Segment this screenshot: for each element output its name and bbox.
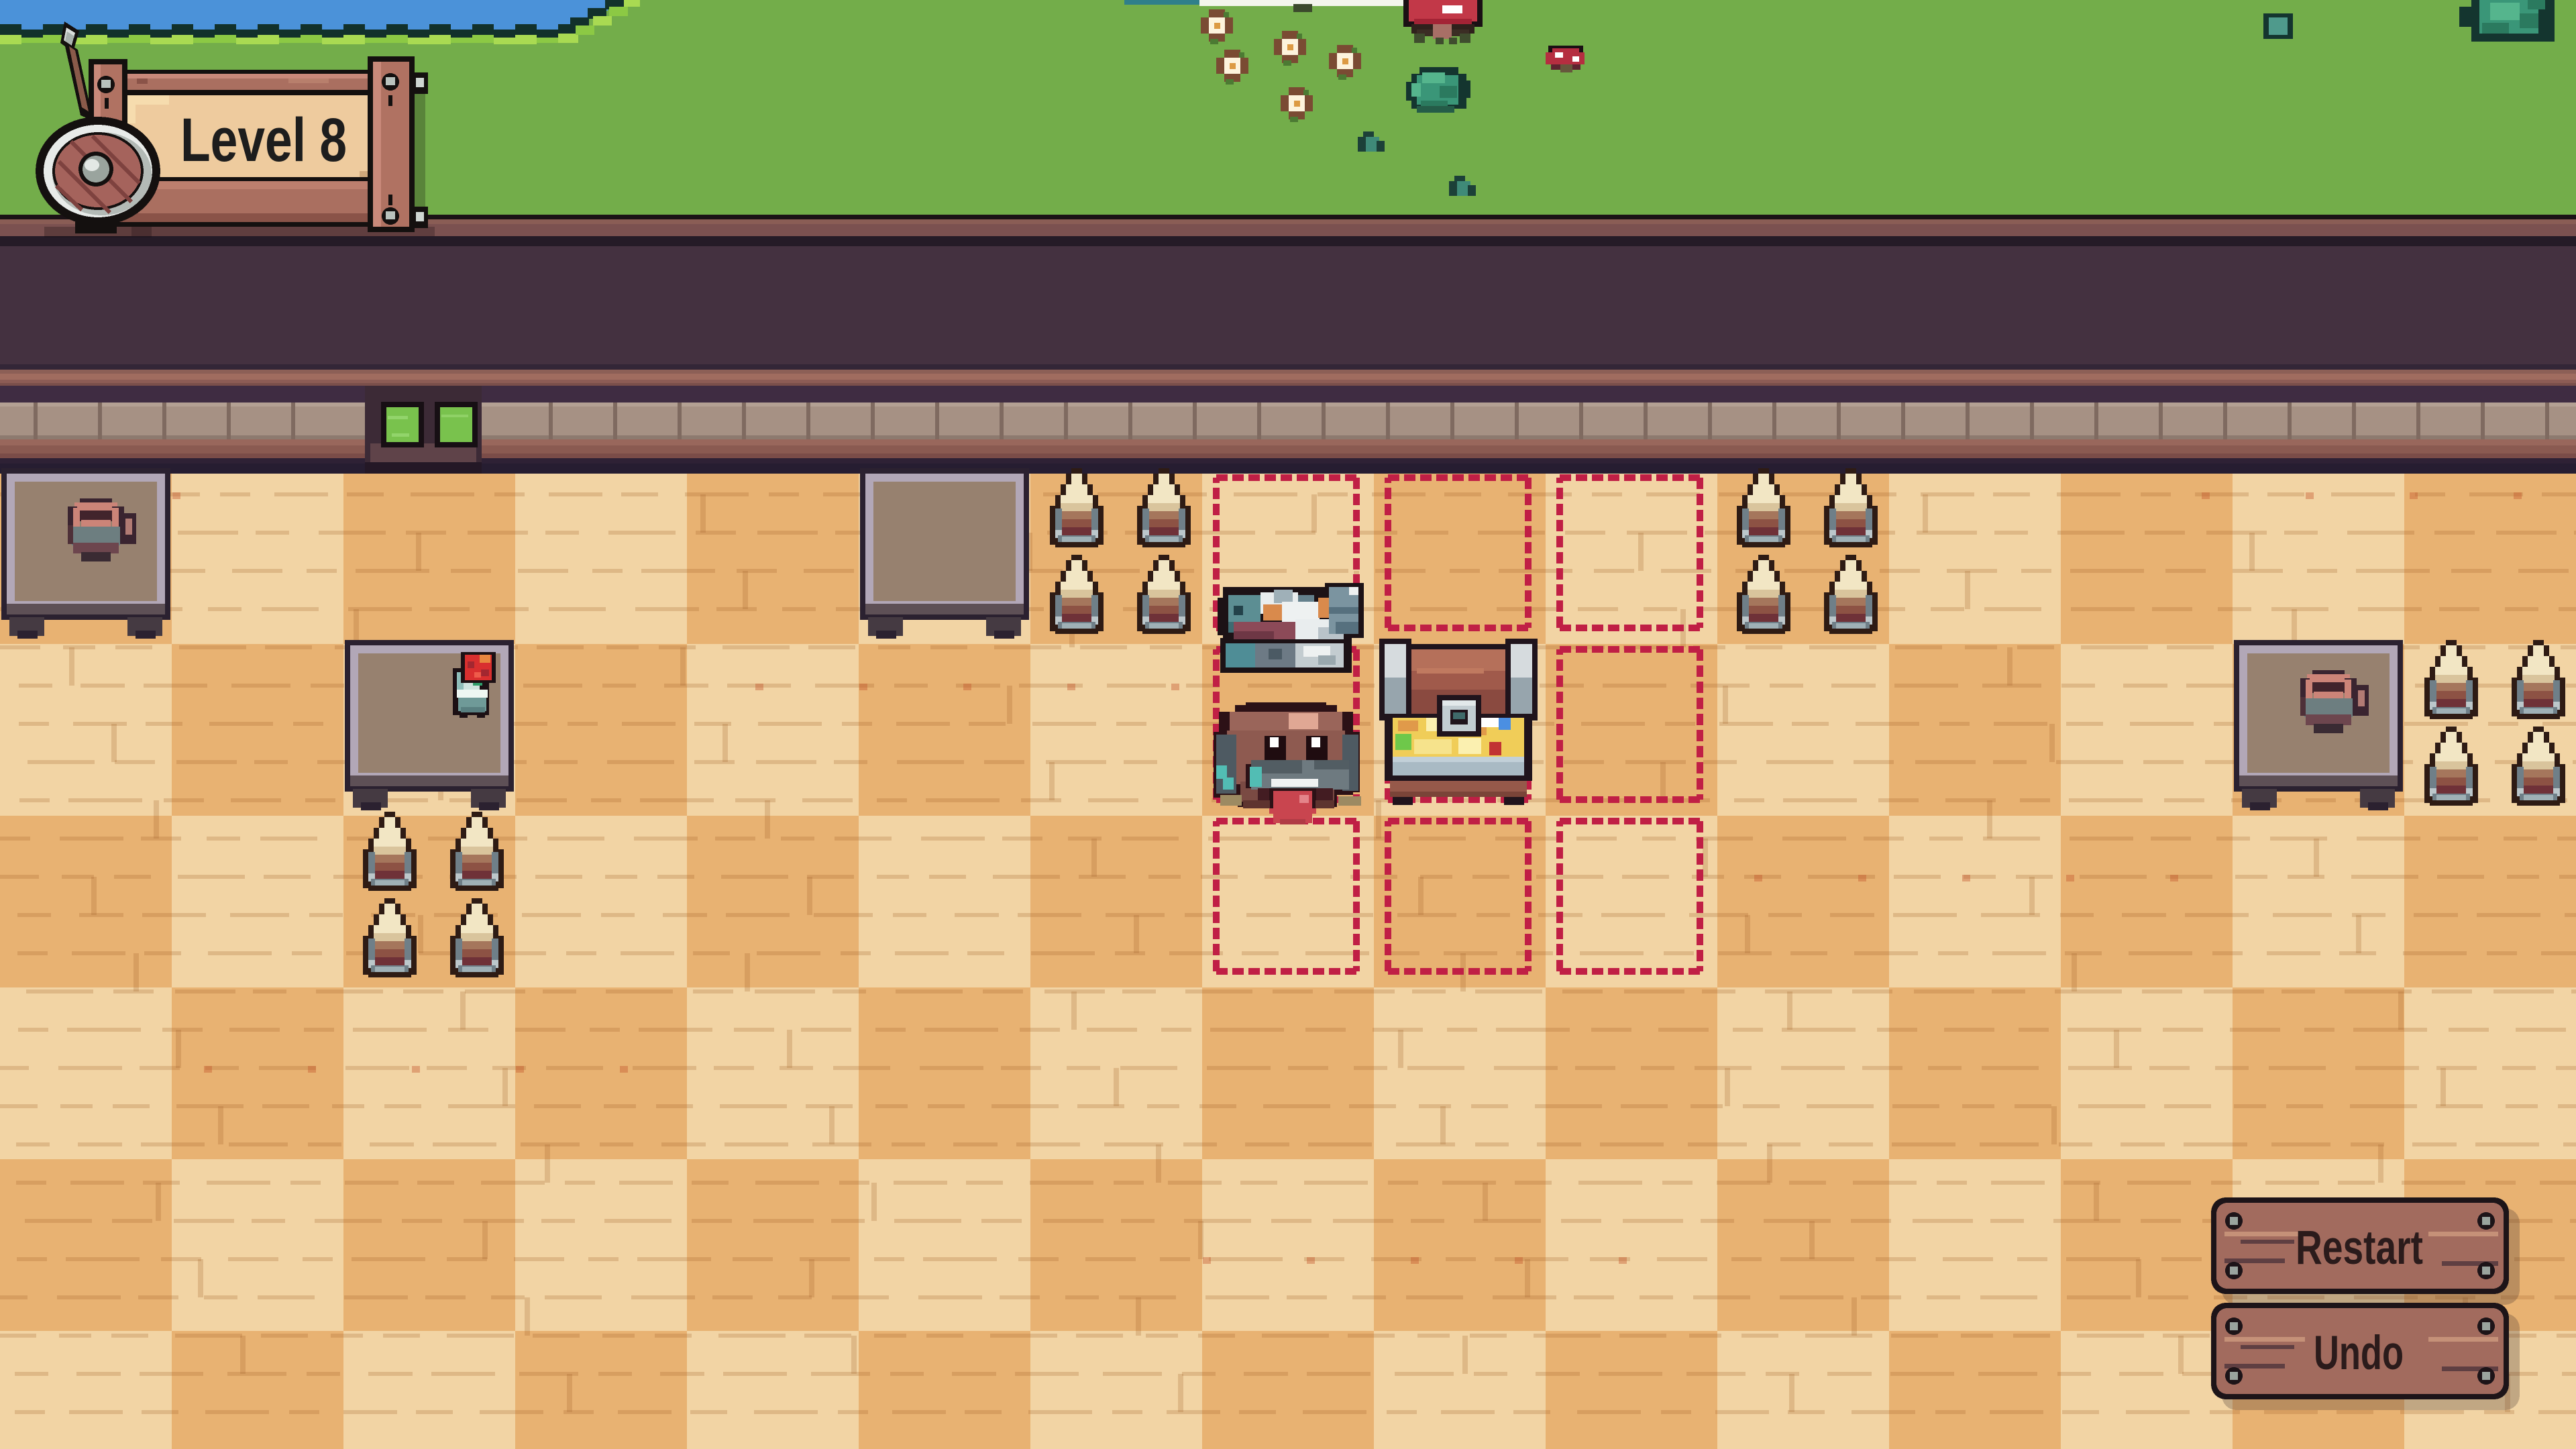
svg-text:Level 8: Level 8 [180,106,347,174]
svg-text:Undo: Undo [2314,1327,2404,1380]
svg-text:Restart: Restart [2296,1222,2423,1275]
